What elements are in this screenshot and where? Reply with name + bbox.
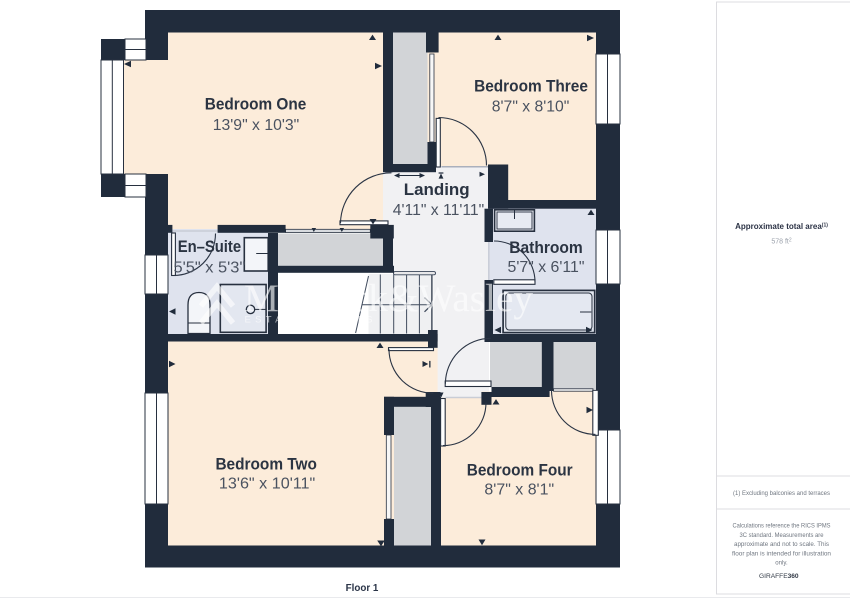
svg-text:13'9" x 10'3": 13'9" x 10'3" bbox=[213, 117, 300, 134]
svg-text:5'7" x 6'11": 5'7" x 6'11" bbox=[508, 259, 585, 276]
svg-text:GIRAFFE: GIRAFFE bbox=[759, 573, 788, 580]
svg-text:Bathroom: Bathroom bbox=[509, 239, 583, 257]
svg-text:13'6" x 10'11": 13'6" x 10'11" bbox=[219, 475, 315, 492]
svg-text:578 ft2: 578 ft2 bbox=[771, 238, 792, 246]
svg-text:Floor 1: Floor 1 bbox=[346, 583, 379, 594]
svg-text:3C standard. Measurements are: 3C standard. Measurements are bbox=[740, 532, 825, 539]
svg-text:En–Suite: En–Suite bbox=[178, 238, 241, 256]
svg-text:Landing: Landing bbox=[404, 181, 470, 199]
svg-text:Calculations reference the RIC: Calculations reference the RICS IPMS bbox=[733, 523, 831, 530]
svg-text:approximate and not to scale.: approximate and not to scale. This bbox=[734, 541, 829, 548]
svg-text:Approximate total area(1): Approximate total area(1) bbox=[735, 222, 828, 231]
svg-text:floor plan is intended for ill: floor plan is intended for illustration bbox=[732, 550, 831, 557]
svg-text:5'5" x 5'3": 5'5" x 5'3" bbox=[173, 260, 245, 277]
svg-text:Bedroom Two: Bedroom Two bbox=[215, 456, 317, 474]
svg-text:8'7" x 8'10": 8'7" x 8'10" bbox=[492, 99, 570, 116]
svg-text:(1) Excluding balconies and te: (1) Excluding balconies and terraces bbox=[733, 490, 830, 497]
svg-text:360: 360 bbox=[788, 573, 799, 580]
svg-text:only.: only. bbox=[775, 560, 788, 567]
svg-text:4'11" x 11'11": 4'11" x 11'11" bbox=[393, 202, 485, 219]
svg-text:Bedroom Four: Bedroom Four bbox=[467, 461, 573, 479]
svg-text:Bedroom One: Bedroom One bbox=[205, 96, 307, 114]
svg-text:Bedroom Three: Bedroom Three bbox=[474, 78, 588, 96]
svg-text:8'7" x 8'1": 8'7" x 8'1" bbox=[484, 482, 554, 499]
